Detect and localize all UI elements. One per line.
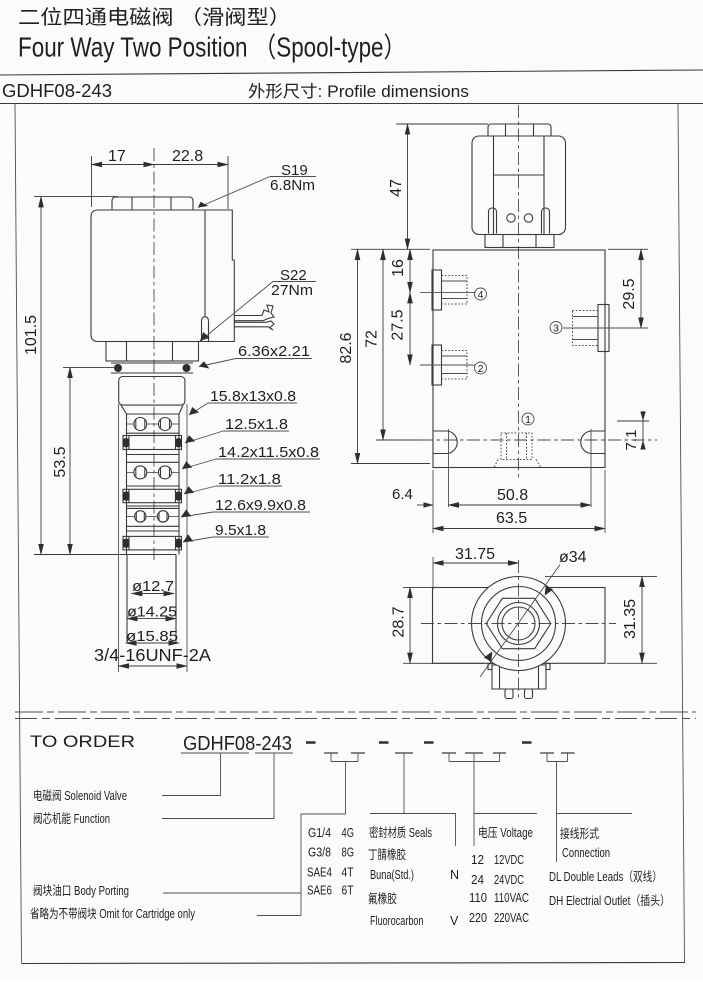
svg-text:28.7: 28.7 [391, 606, 408, 637]
svg-text:12VDC: 12VDC [494, 853, 524, 867]
svg-text:阀芯机能 Function: 阀芯机能 Function [33, 812, 110, 826]
svg-text:29.5: 29.5 [621, 278, 638, 309]
svg-text:220VAC: 220VAC [494, 911, 529, 925]
svg-text:Buna(Std.): Buna(Std.) [370, 868, 414, 882]
svg-text:22.8: 22.8 [172, 148, 203, 165]
svg-text:省略为不带阀块 Omit for Cartridge onl: 省略为不带阀块 Omit for Cartridge only [30, 906, 196, 921]
svg-text:4G: 4G [342, 826, 355, 840]
svg-text:丁腈橡胶: 丁腈橡胶 [368, 847, 406, 862]
svg-text:3: 3 [553, 322, 559, 334]
svg-text:阀块油口 Body Porting: 阀块油口 Body Porting [33, 884, 129, 898]
svg-text:27.5: 27.5 [390, 309, 407, 340]
svg-text:外形尺寸: Profile dimensions: 外形尺寸: Profile dimensions [248, 82, 469, 101]
svg-text:V: V [450, 914, 459, 928]
svg-text:101.5: 101.5 [23, 315, 40, 355]
svg-text:110VAC: 110VAC [494, 891, 529, 905]
svg-text:二位四通电磁阀 （滑阀型）: 二位四通电磁阀 （滑阀型） [18, 6, 291, 29]
svg-text:ø34: ø34 [559, 549, 587, 566]
svg-text:8G: 8G [342, 846, 355, 860]
svg-text:N: N [450, 868, 459, 882]
svg-text:12.5x1.8: 12.5x1.8 [225, 416, 288, 433]
svg-text:氟橡胶: 氟橡胶 [368, 891, 397, 906]
svg-text:6.36x2.21: 6.36x2.21 [238, 343, 310, 360]
svg-text:7.1: 7.1 [623, 430, 640, 451]
svg-text:4T: 4T [342, 866, 354, 880]
svg-text:12: 12 [471, 853, 484, 867]
svg-text:3/4-16UNF-2A: 3/4-16UNF-2A [94, 645, 211, 665]
svg-text:密封材质 Seals: 密封材质 Seals [369, 825, 432, 840]
svg-text:Fluorocarbon: Fluorocarbon [370, 914, 424, 928]
svg-text:24: 24 [471, 873, 484, 887]
svg-text:电压 Voltage: 电压 Voltage [478, 826, 533, 840]
svg-text:接线形式: 接线形式 [560, 826, 599, 841]
svg-text:63.5: 63.5 [496, 510, 527, 527]
svg-text:Four Way Two Position （Spool-t: Four Way Two Position （Spool-type） [18, 32, 406, 63]
svg-text:220: 220 [469, 911, 487, 925]
svg-text:50.8: 50.8 [497, 487, 528, 504]
svg-text:GDHF08-243: GDHF08-243 [183, 733, 292, 755]
svg-text:SAE4: SAE4 [307, 866, 332, 880]
svg-text:ø14.25: ø14.25 [127, 604, 177, 621]
svg-text:SAE6: SAE6 [307, 884, 332, 898]
svg-text:110: 110 [469, 891, 487, 905]
svg-text:2: 2 [478, 363, 484, 375]
svg-text:DL Double Leads（双线）: DL Double Leads（双线） [549, 870, 662, 884]
svg-text:16: 16 [390, 259, 407, 277]
svg-text:12.6x9.9x0.8: 12.6x9.9x0.8 [215, 497, 306, 514]
svg-text:11.2x1.8: 11.2x1.8 [218, 471, 281, 488]
svg-text:Connection: Connection [562, 846, 610, 860]
svg-text:6T: 6T [342, 884, 354, 898]
svg-text:9.5x1.8: 9.5x1.8 [215, 522, 266, 539]
svg-text:53.5: 53.5 [52, 446, 69, 477]
svg-text:15.8x13x0.8: 15.8x13x0.8 [210, 388, 296, 405]
svg-text:6.4: 6.4 [392, 486, 413, 503]
svg-text:24VDC: 24VDC [494, 873, 524, 887]
svg-text:G3/8: G3/8 [308, 846, 331, 860]
svg-text:1: 1 [525, 414, 531, 426]
svg-text:27Nm: 27Nm [271, 282, 313, 299]
svg-text:G1/4: G1/4 [308, 826, 331, 840]
svg-text:17: 17 [108, 148, 126, 165]
svg-text:72: 72 [364, 330, 381, 348]
svg-text:ø15.85: ø15.85 [126, 628, 178, 645]
svg-text:6.8Nm: 6.8Nm [270, 177, 315, 194]
svg-text:14.2x11.5x0.8: 14.2x11.5x0.8 [218, 444, 319, 461]
svg-text:电磁阀 Solenoid Valve: 电磁阀 Solenoid Valve [33, 788, 127, 803]
svg-text:DH Electrial Outlet（插头）: DH Electrial Outlet（插头） [549, 894, 670, 908]
svg-text:ø12.7: ø12.7 [132, 578, 174, 595]
svg-text:31.75: 31.75 [455, 546, 495, 563]
svg-text:82.6: 82.6 [338, 332, 355, 363]
svg-text:31.35: 31.35 [622, 599, 639, 639]
svg-text:GDHF08-243: GDHF08-243 [2, 80, 112, 101]
svg-text:4: 4 [478, 289, 484, 301]
svg-text:TO ORDER: TO ORDER [30, 732, 135, 751]
svg-text:47: 47 [388, 179, 405, 197]
